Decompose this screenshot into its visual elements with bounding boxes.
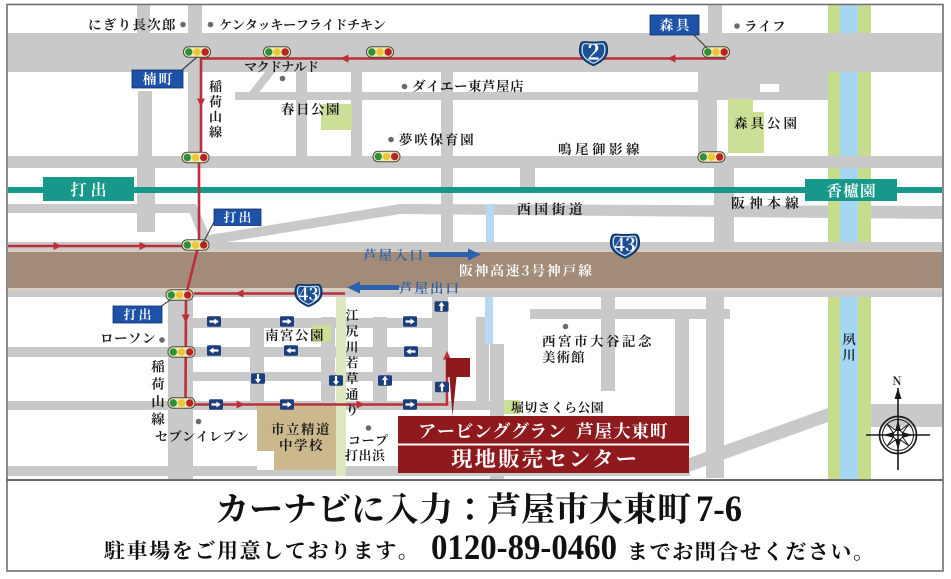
- svg-text:0120-89-0460: 0120-89-0460: [431, 527, 617, 567]
- svg-text:7-6: 7-6: [696, 489, 742, 530]
